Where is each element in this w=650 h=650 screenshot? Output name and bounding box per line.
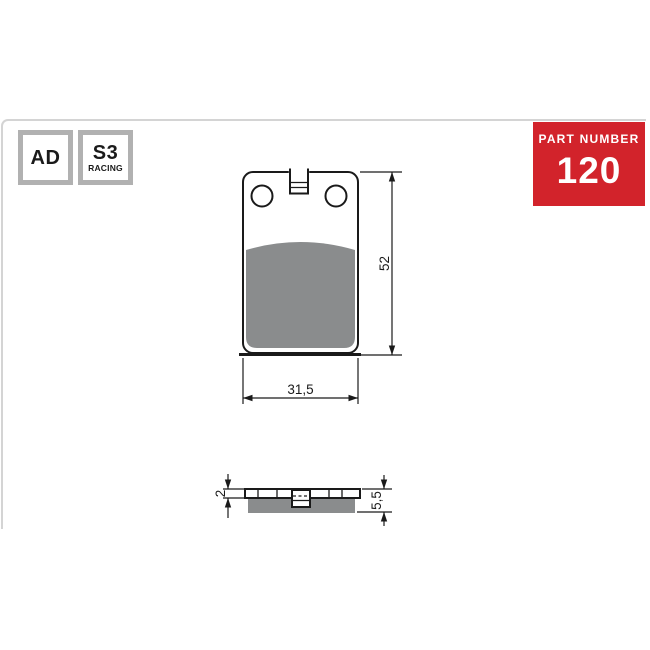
arrowhead-down-icon — [225, 480, 231, 490]
badge-racing-label: RACING — [88, 163, 123, 173]
arrowhead-down-icon — [381, 480, 387, 490]
backplate-thickness-label: 2 — [213, 490, 228, 498]
arrowhead-left-icon — [243, 395, 253, 401]
dimension-height: 52 — [360, 172, 402, 355]
badge-s3-racing: S3 RACING — [78, 130, 133, 185]
compound-badges: AD S3 RACING — [18, 130, 133, 185]
arrowhead-up-icon — [225, 498, 231, 508]
tab-notch-mask — [289, 168, 309, 196]
product-diagram-page: AD S3 RACING PART NUMBER 120 — [0, 0, 650, 650]
badge-ad-label: AD — [31, 148, 61, 168]
arrowhead-down-icon — [389, 346, 395, 356]
part-number-label: PART NUMBER — [533, 132, 645, 146]
part-number-value: 120 — [533, 152, 645, 190]
dimension-total-thickness: 5,5 — [357, 475, 392, 526]
brake-pad-front-view — [239, 168, 361, 355]
height-dim-label: 52 — [377, 256, 392, 271]
arrowhead-right-icon — [349, 395, 359, 401]
total-thickness-label: 5,5 — [369, 491, 384, 510]
brake-pad-side-view — [245, 489, 360, 513]
brake-pad-technical-drawing: 52 31,5 — [200, 150, 440, 570]
width-dim-label: 31,5 — [287, 382, 313, 397]
dimension-backplate-thickness: 2 — [213, 474, 244, 518]
badge-ad: AD — [18, 130, 73, 185]
part-number-box: PART NUMBER 120 — [533, 122, 645, 206]
mounting-hole-right — [326, 186, 347, 207]
arrowhead-up-icon — [389, 172, 395, 182]
friction-material-front — [246, 242, 355, 348]
mounting-hole-left — [252, 186, 273, 207]
arrowhead-up-icon — [381, 512, 387, 522]
badge-s3-label: S3 — [93, 143, 118, 163]
center-tab-side — [292, 490, 310, 507]
dimension-width: 31,5 — [243, 358, 358, 404]
